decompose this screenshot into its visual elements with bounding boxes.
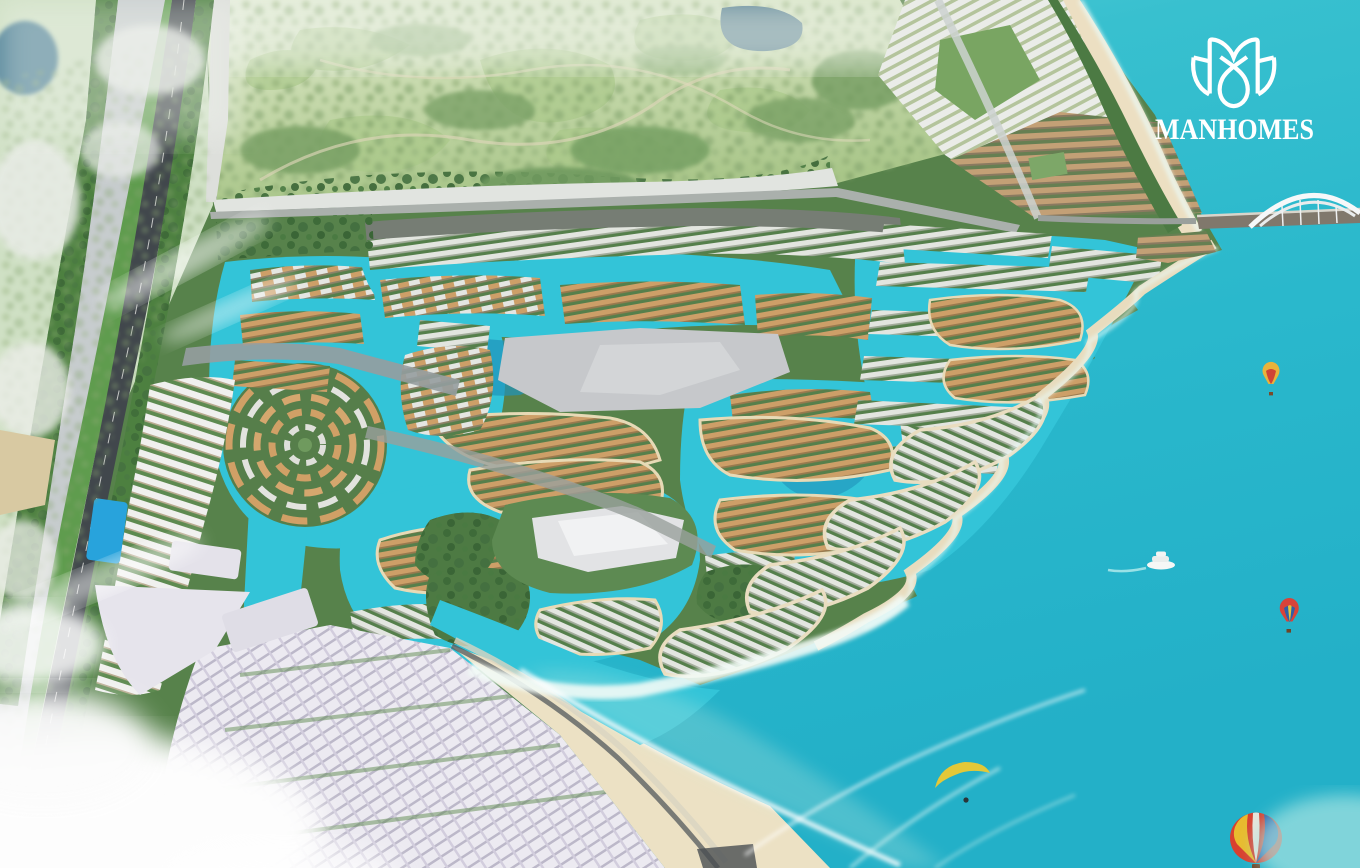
svg-text:MANHOMES: MANHOMES bbox=[1155, 113, 1314, 146]
